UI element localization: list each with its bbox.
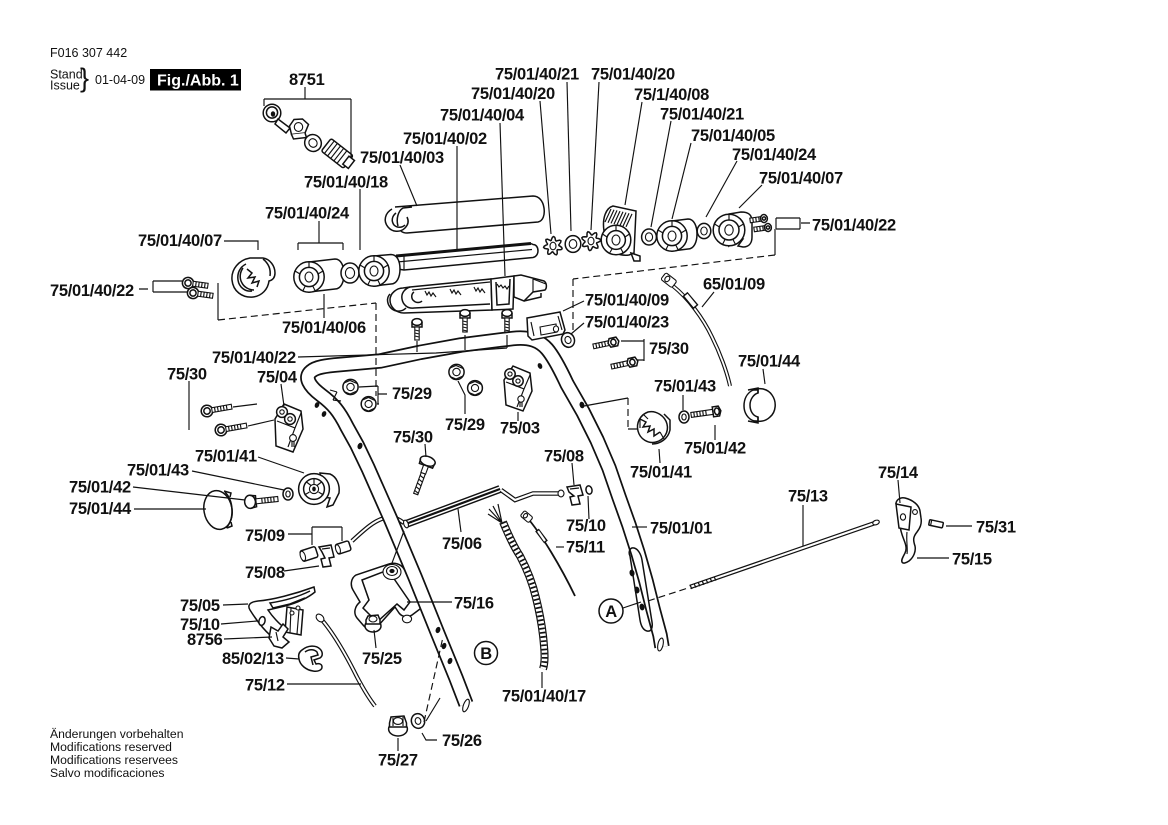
svg-text:75/04: 75/04 xyxy=(257,369,298,387)
svg-text:75/01/40/03: 75/01/40/03 xyxy=(360,149,444,167)
svg-text:B: B xyxy=(480,645,492,663)
svg-text:75/08: 75/08 xyxy=(544,448,584,466)
svg-text:65/01/09: 65/01/09 xyxy=(703,276,765,294)
svg-text:75/01/40/24: 75/01/40/24 xyxy=(265,205,350,223)
svg-text:01-04-09: 01-04-09 xyxy=(95,73,145,87)
svg-text:75/01/40/22: 75/01/40/22 xyxy=(212,349,296,367)
svg-text:75/01/43: 75/01/43 xyxy=(127,462,189,480)
svg-text:Änderungen vorbehalten: Änderungen vorbehalten xyxy=(50,727,184,741)
svg-text:75/05: 75/05 xyxy=(180,597,220,615)
svg-text:75/01/40/07: 75/01/40/07 xyxy=(138,232,222,250)
svg-text:75/01/42: 75/01/42 xyxy=(69,479,131,497)
svg-text:75/01/40/20: 75/01/40/20 xyxy=(471,85,555,103)
svg-text:75/01/40/17: 75/01/40/17 xyxy=(502,688,586,706)
svg-text:75/06: 75/06 xyxy=(442,535,482,553)
svg-text:Modifications reserved: Modifications reserved xyxy=(50,740,172,754)
svg-text:75/01/41: 75/01/41 xyxy=(195,448,257,466)
svg-text:75/29: 75/29 xyxy=(445,416,485,434)
svg-text:75/01/43: 75/01/43 xyxy=(654,378,716,396)
svg-text:75/26: 75/26 xyxy=(442,732,482,750)
svg-text:75/01/40/07: 75/01/40/07 xyxy=(759,170,843,188)
svg-text:75/31: 75/31 xyxy=(976,519,1016,537)
svg-text:75/01/44: 75/01/44 xyxy=(69,500,132,518)
svg-text:75/01/40/24: 75/01/40/24 xyxy=(732,146,817,164)
svg-text:75/01/40/23: 75/01/40/23 xyxy=(585,314,669,332)
svg-text:75/01/44: 75/01/44 xyxy=(738,353,801,371)
svg-text:75/1/40/08: 75/1/40/08 xyxy=(634,86,709,104)
svg-text:A: A xyxy=(605,603,617,621)
svg-text:}: } xyxy=(80,63,89,93)
svg-text:Fig./Abb. 1: Fig./Abb. 1 xyxy=(157,73,239,90)
svg-text:75/11: 75/11 xyxy=(566,539,605,557)
svg-text:75/09: 75/09 xyxy=(245,527,285,545)
svg-text:75/10: 75/10 xyxy=(566,517,606,535)
svg-text:75/13: 75/13 xyxy=(788,488,828,506)
svg-text:75/08: 75/08 xyxy=(245,564,285,582)
svg-text:85/02/13: 85/02/13 xyxy=(222,650,284,668)
svg-text:75/29: 75/29 xyxy=(392,385,432,403)
svg-text:75/01/40/04: 75/01/40/04 xyxy=(440,107,525,125)
svg-text:75/01/42: 75/01/42 xyxy=(684,440,746,458)
svg-text:75/14: 75/14 xyxy=(878,464,919,482)
svg-text:75/01/40/22: 75/01/40/22 xyxy=(812,217,896,235)
svg-text:75/01/40/02: 75/01/40/02 xyxy=(403,130,487,148)
svg-text:Salvo modificaciones: Salvo modificaciones xyxy=(50,766,164,780)
svg-text:75/01/40/21: 75/01/40/21 xyxy=(495,66,579,84)
svg-text:75/01/01: 75/01/01 xyxy=(650,520,712,538)
svg-text:75/30: 75/30 xyxy=(167,366,207,384)
svg-text:75/30: 75/30 xyxy=(393,429,433,447)
svg-text:75/01/40/20: 75/01/40/20 xyxy=(591,66,675,84)
svg-text:75/01/40/18: 75/01/40/18 xyxy=(304,174,388,192)
svg-text:75/01/40/05: 75/01/40/05 xyxy=(691,127,775,145)
svg-text:75/01/40/22: 75/01/40/22 xyxy=(50,282,134,300)
svg-text:75/16: 75/16 xyxy=(454,595,494,613)
svg-text:75/30: 75/30 xyxy=(649,340,689,358)
svg-text:75/01/40/09: 75/01/40/09 xyxy=(585,292,669,310)
svg-text:75/01/40/06: 75/01/40/06 xyxy=(282,319,366,337)
svg-text:F016 307 442: F016 307 442 xyxy=(50,46,127,60)
svg-text:75/03: 75/03 xyxy=(500,420,540,438)
svg-text:Modifications reservees: Modifications reservees xyxy=(50,753,178,767)
svg-text:75/25: 75/25 xyxy=(362,650,402,668)
svg-text:Issue: Issue xyxy=(50,79,80,93)
svg-text:8756: 8756 xyxy=(187,631,223,649)
svg-text:75/01/41: 75/01/41 xyxy=(630,464,692,482)
svg-text:75/12: 75/12 xyxy=(245,677,285,695)
svg-text:75/15: 75/15 xyxy=(952,551,992,569)
svg-text:8751: 8751 xyxy=(289,71,325,89)
svg-text:75/27: 75/27 xyxy=(378,752,418,770)
svg-text:75/01/40/21: 75/01/40/21 xyxy=(660,106,744,124)
